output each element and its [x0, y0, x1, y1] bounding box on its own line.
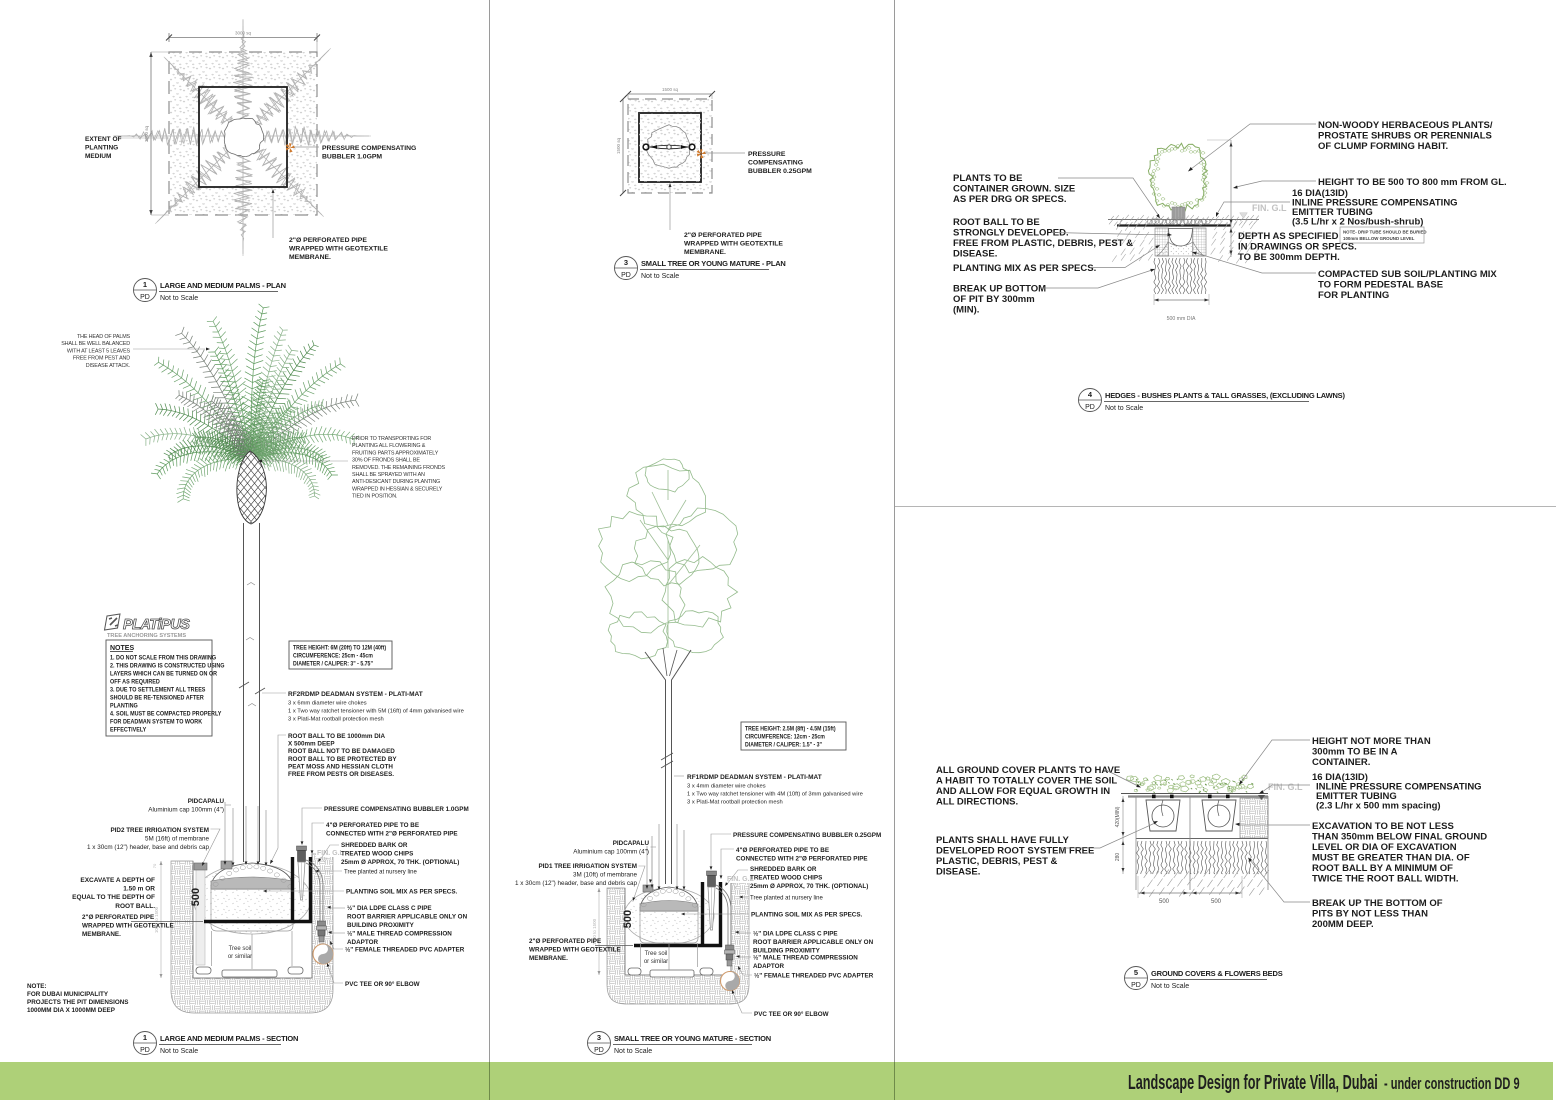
svg-text:WRAPPED IN HESSIAN & SECUR: WRAPPED IN HESSIAN & SECURELY: [352, 486, 443, 492]
svg-text:AS PER DRG OR SPECS.: AS PER DRG OR SPECS.: [953, 194, 1067, 205]
svg-text:EQUAL TO THE DEPTH OF: EQUAL TO THE DEPTH OF: [72, 894, 155, 901]
svg-text:CIRCUMFERENCE: 25cm - 45cm: CIRCUMFERENCE: 25cm - 45cm: [293, 653, 373, 660]
svg-text:ANTI-DESICANT DURING PLANTIN: ANTI-DESICANT DURING PLANTING: [352, 479, 440, 485]
svg-text:PID1 TREE IRRIGATION SYSTEM: PID1 TREE IRRIGATION SYSTEM: [538, 863, 637, 870]
svg-text:5: 5: [1134, 968, 1138, 977]
svg-text:30% OF FRONDS SHALL BE: 30% OF FRONDS SHALL BE: [352, 458, 420, 464]
svg-text:PITS BY NOT LESS THAN: PITS BY NOT LESS THAN: [1312, 909, 1428, 920]
svg-text:PRESSURE: PRESSURE: [748, 151, 786, 158]
svg-text:HEDGES - BUSHES PLANTS & TALL: HEDGES - BUSHES PLANTS & TALL GRASSES, (…: [1105, 391, 1345, 400]
svg-text:5M (16ft) of membrane: 5M (16ft) of membrane: [145, 836, 210, 843]
svg-text:2"Ø PERFORATED PIPE: 2"Ø PERFORATED PIPE: [529, 938, 601, 945]
svg-text:2"Ø PERFORATED PIPE: 2"Ø PERFORATED PIPE: [684, 232, 762, 239]
svg-text:70: 70: [152, 863, 157, 868]
svg-text:ALL DIRECTIONS.: ALL DIRECTIONS.: [936, 797, 1018, 808]
svg-text:OFF AS REQUIRED: OFF AS REQUIRED: [110, 679, 160, 685]
svg-text:PD: PD: [140, 1047, 150, 1054]
svg-text:EXTENT OF: EXTENT OF: [85, 136, 122, 143]
svg-text:300mm TO BE IN A: 300mm TO BE IN A: [1312, 747, 1398, 758]
svg-text:420(MIN): 420(MIN): [1115, 806, 1121, 827]
svg-text:ROOT BALL TO BE PROTECTED BY: ROOT BALL TO BE PROTECTED BY: [288, 756, 397, 763]
svg-text:FOR PLANTING: FOR PLANTING: [1318, 290, 1389, 301]
svg-text:X 500mm DEEP: X 500mm DEEP: [288, 741, 335, 748]
svg-text:REMOVED. THE REMAINING FRON: REMOVED. THE REMAINING FRONDS: [352, 465, 445, 471]
svg-text:BREAK UP THE BOTTOM OF: BREAK UP THE BOTTOM OF: [1312, 898, 1443, 909]
svg-text:TWICE THE ROOT BALL WIDTH.: TWICE THE ROOT BALL WIDTH.: [1312, 874, 1459, 885]
svg-text:500: 500: [622, 910, 634, 928]
svg-text:THAN 350mm BELOW FINAL GROUND: THAN 350mm BELOW FINAL GROUND: [1312, 832, 1487, 843]
svg-text:Not to Scale: Not to Scale: [641, 273, 679, 280]
svg-text:SMALL TREE OR YOUNG MATURE - S: SMALL TREE OR YOUNG MATURE - SECTION: [614, 1034, 771, 1043]
svg-text:2. THIS DRAWING IS CONSTRUCTE: 2. THIS DRAWING IS CONSTRUCTED USING: [110, 663, 225, 669]
svg-text:Not to Scale: Not to Scale: [160, 295, 198, 302]
svg-text:PD: PD: [1085, 404, 1095, 411]
svg-text:HEIGHT TO BE 500 TO 800 mm FRO: HEIGHT TO BE 500 TO 800 mm FROM GL.: [1318, 177, 1507, 188]
svg-text:Landscape Design for Private V: Landscape Design for Private Villa, Duba…: [1128, 1071, 1378, 1094]
svg-text:PIDCAPALU: PIDCAPALU: [613, 840, 650, 847]
svg-text:GROUND COVERS & FLOWERS BEDS: GROUND COVERS & FLOWERS BEDS: [1151, 969, 1283, 978]
svg-text:PLANTS TO BE: PLANTS TO BE: [953, 173, 1023, 184]
svg-text:ROOT BALL TO BE 1000mm DIA: ROOT BALL TO BE 1000mm DIA: [288, 733, 385, 740]
svg-text:HEIGHT NOT MORE THAN: HEIGHT NOT MORE THAN: [1312, 736, 1431, 747]
svg-text:Not to Scale: Not to Scale: [614, 1048, 652, 1055]
svg-text:DISEASE.: DISEASE.: [953, 249, 997, 260]
svg-text:500: 500: [1211, 899, 1222, 905]
svg-text:SMALL TREE OR YOUNG MATURE - P: SMALL TREE OR YOUNG MATURE - PLAN: [641, 259, 786, 268]
svg-text:SHALL BE WELL BALANCED: SHALL BE WELL BALANCED: [61, 341, 130, 347]
svg-text:MEMBRANE.: MEMBRANE.: [529, 955, 568, 962]
svg-text:or similar: or similar: [644, 959, 668, 965]
svg-text:25mm Ø APPROX, 70 THK. (OPTION: 25mm Ø APPROX, 70 THK. (OPTIONAL): [341, 859, 459, 866]
svg-text:TO FORM PEDESTAL BASE: TO FORM PEDESTAL BASE: [1318, 280, 1443, 291]
svg-text:3M (10ft) of membrane: 3M (10ft) of membrane: [573, 872, 638, 879]
svg-text:2"Ø PERFORATED PIPE: 2"Ø PERFORATED PIPE: [82, 914, 154, 921]
svg-text:PRESSURE COMPENSATING BUBBLER: PRESSURE COMPENSATING BUBBLER 0.25GPM: [733, 832, 881, 839]
svg-text:CONTAINER.: CONTAINER.: [1312, 757, 1370, 768]
svg-text:½" FEMALE THREADED PVC ADAPTER: ½" FEMALE THREADED PVC ADAPTER: [754, 972, 874, 980]
svg-text:FREE FROM PLASTIC, DEBRIS, PES: FREE FROM PLASTIC, DEBRIS, PEST &: [953, 238, 1133, 249]
svg-text:CONNECTED WITH 2"Ø PERFORATED: CONNECTED WITH 2"Ø PERFORATED PIPE: [736, 856, 868, 863]
svg-text:BUILDING PROXIMITY: BUILDING PROXIMITY: [347, 922, 415, 929]
svg-text:½" DIA LDPE CLASS C PIPE: ½" DIA LDPE CLASS C PIPE: [753, 930, 838, 938]
svg-text:PLANTING MIX AS PER SPECS.: PLANTING MIX AS PER SPECS.: [953, 263, 1096, 274]
svg-text:RF2RDMP DEADMAN SYSTEM - PLATI: RF2RDMP DEADMAN SYSTEM - PLATI-MAT: [288, 691, 423, 698]
svg-text:WRAPPED WITH GEOTEXTILE: WRAPPED WITH GEOTEXTILE: [289, 246, 388, 253]
svg-text:3000 sq: 3000 sq: [144, 125, 149, 142]
svg-text:PD: PD: [621, 272, 631, 279]
svg-text:STRONGLY DEVELOPED.: STRONGLY DEVELOPED.: [953, 228, 1069, 239]
svg-text:NOTE- DRIP TUBE SHOULD BE BURI: NOTE- DRIP TUBE SHOULD BE BURIED: [1343, 230, 1427, 235]
svg-text:Tree planted at nursery line: Tree planted at nursery line: [750, 896, 823, 902]
svg-text:FIN. G.L: FIN. G.L: [1268, 782, 1303, 792]
svg-text:PVC TEE OR 90° ELBOW: PVC TEE OR 90° ELBOW: [754, 1010, 829, 1018]
svg-text:BREAK UP BOTTOM: BREAK UP BOTTOM: [953, 284, 1046, 295]
svg-text:THE HEAD OF PALMS: THE HEAD OF PALMS: [77, 334, 131, 340]
svg-text:(3.5 L/hr x 2 Nos/bush-shrub): (3.5 L/hr x 2 Nos/bush-shrub): [1292, 217, 1423, 228]
svg-text:280: 280: [1115, 853, 1121, 862]
svg-text:PEAT MOSS AND HESSIAN CLOTH: PEAT MOSS AND HESSIAN CLOTH: [288, 763, 393, 770]
svg-text:PID2 TREE IRRIGATION SYSTEM: PID2 TREE IRRIGATION SYSTEM: [110, 827, 209, 834]
svg-text:3. DUE TO SETTLEMENT ALL TREE: 3. DUE TO SETTLEMENT ALL TREES: [110, 687, 205, 693]
svg-text:EXCAVATION TO BE NOT LESS: EXCAVATION TO BE NOT LESS: [1312, 821, 1454, 832]
svg-text:BUBBLER 0.25GPM: BUBBLER 0.25GPM: [748, 168, 812, 175]
svg-text:DEVELOPED ROOT SYSTEM FREE: DEVELOPED ROOT SYSTEM FREE: [936, 846, 1094, 857]
svg-text:1500 sq: 1500 sq: [616, 137, 621, 154]
svg-text:1 x 30cm (12") header, base an: 1 x 30cm (12") header, base and debris c…: [87, 844, 209, 851]
svg-text:PVC TEE OR 90° ELBOW: PVC TEE OR 90° ELBOW: [345, 980, 420, 988]
svg-text:FIN. G.L: FIN. G.L: [1252, 203, 1287, 213]
svg-text:BUBBLER 1.0GPM: BUBBLER 1.0GPM: [322, 154, 382, 161]
svg-text:PRESSURE COMPENSATING: PRESSURE COMPENSATING: [322, 145, 416, 152]
svg-text:500: 500: [1159, 899, 1170, 905]
svg-text:RF1RDMP DEADMAN SYSTEM - PLATI: RF1RDMP DEADMAN SYSTEM - PLATI-MAT: [687, 774, 822, 781]
svg-text:1. DO NOT SCALE FROM THIS DRA: 1. DO NOT SCALE FROM THIS DRAWING: [110, 655, 216, 661]
svg-text:ALL GROUND COVER PLANTS TO HAV: ALL GROUND COVER PLANTS TO HAVE: [936, 765, 1120, 776]
svg-text:TREE HEIGHT: 2.5M (8ft) - 4.5M: TREE HEIGHT: 2.5M (8ft) - 4.5M (15ft): [745, 726, 836, 733]
svg-text:ROOT BALL NOT TO BE DAMAGED: ROOT BALL NOT TO BE DAMAGED: [288, 748, 395, 755]
svg-text:½" MALE THREAD COMPRESSION: ½" MALE THREAD COMPRESSION: [753, 954, 858, 962]
svg-text:3 x Plati-Mat rootball protect: 3 x Plati-Mat rootball protection mesh: [288, 717, 384, 723]
svg-text:3000 sq: 3000 sq: [235, 31, 252, 36]
svg-text:AND ALLOW FOR EQUAL GROWTH IN: AND ALLOW FOR EQUAL GROWTH IN: [936, 786, 1110, 797]
svg-text:WITH AT LEAST 5 LEAVES: WITH AT LEAST 5 LEAVES: [67, 348, 131, 354]
svg-text:EXCAVATE A DEPTH OF: EXCAVATE A DEPTH OF: [80, 877, 155, 884]
svg-text:4"Ø PERFORATED PIPE TO BE: 4"Ø PERFORATED PIPE TO BE: [326, 822, 419, 829]
svg-text:PD: PD: [1131, 982, 1141, 989]
svg-text:1500 sq: 1500 sq: [662, 87, 679, 92]
svg-text:4. SOIL MUST BE COMPACTED PRO: 4. SOIL MUST BE COMPACTED PROPERLY: [110, 711, 221, 717]
svg-text:FOR DUBAI MUNICIPALITY: FOR DUBAI MUNICIPALITY: [27, 991, 109, 998]
svg-text:TREATED WOOD CHIPS: TREATED WOOD CHIPS: [750, 875, 822, 882]
svg-text:PLANTING: PLANTING: [85, 145, 118, 152]
svg-text:FREE FROM PEST AND: FREE FROM PEST AND: [73, 356, 130, 362]
svg-text:2"Ø PERFORATED PIPE: 2"Ø PERFORATED PIPE: [289, 237, 367, 244]
svg-text:½" FEMALE THREADED PVC ADAPTER: ½" FEMALE THREADED PVC ADAPTER: [345, 946, 465, 954]
svg-text:PRIOR TO TRANSPORTING FOR: PRIOR TO TRANSPORTING FOR: [352, 436, 431, 442]
svg-text:ROOT BARRIER APPLICABLE ONLY O: ROOT BARRIER APPLICABLE ONLY ON: [347, 914, 468, 921]
svg-text:COMPENSATING: COMPENSATING: [748, 160, 803, 167]
svg-text:PIDCAPALU: PIDCAPALU: [188, 798, 225, 805]
svg-text:(MIN).: (MIN).: [953, 305, 979, 316]
svg-text:1000MM DIA X 1000MM DEEP: 1000MM DIA X 1000MM DEEP: [27, 1007, 115, 1014]
svg-text:NON-WOODY HERBACEOUS PLANTS/: NON-WOODY HERBACEOUS PLANTS/: [1318, 120, 1493, 131]
svg-text:3 x Plati-Mat rootball protect: 3 x Plati-Mat rootball protection mesh: [687, 800, 783, 806]
svg-text:3: 3: [624, 258, 628, 267]
svg-text:FREE FROM PESTS OR DISEASES.: FREE FROM PESTS OR DISEASES.: [288, 771, 394, 778]
svg-text:100mm BELLOW GROUND LEVEL: 100mm BELLOW GROUND LEVEL: [1343, 236, 1415, 241]
svg-text:ROOT BALL TO BE: ROOT BALL TO BE: [953, 217, 1040, 228]
svg-text:ROOT BARRIER APPLICABLE ONLY O: ROOT BARRIER APPLICABLE ONLY ON: [753, 939, 874, 946]
svg-text:TO BE 300mm DEPTH.: TO BE 300mm DEPTH.: [1238, 252, 1340, 263]
svg-text:1 x Two way ratchet tensioner: 1 x Two way ratchet tensioner with 4M (1…: [687, 792, 863, 798]
svg-text:NOTES: NOTES: [110, 645, 134, 652]
svg-text:DISEASE ATTACK.: DISEASE ATTACK.: [86, 363, 130, 369]
svg-text:MEMBRANE.: MEMBRANE.: [289, 254, 331, 261]
svg-text:PLANTING: PLANTING: [110, 703, 138, 709]
svg-text:MUST BE GREATER THAN DIA. OF: MUST BE GREATER THAN DIA. OF: [1312, 853, 1470, 864]
svg-text:Not to Scale: Not to Scale: [1105, 405, 1143, 412]
svg-text:PROSTATE SHRUBS OR PERENNIALS: PROSTATE SHRUBS OR PERENNIALS: [1318, 131, 1492, 142]
svg-text:(2.3 L/hr x 500 mm spacing): (2.3 L/hr x 500 mm spacing): [1316, 801, 1441, 812]
svg-text:TREE HEIGHT: 6M (20ft) TO 12M: TREE HEIGHT: 6M (20ft) TO 12M (40ft): [293, 645, 386, 652]
svg-text:1: 1: [143, 1033, 147, 1042]
svg-text:SHREDDED BARK OR: SHREDDED BARK OR: [341, 842, 408, 849]
svg-text:PROJECTS THE PIT DIMENSIONS: PROJECTS THE PIT DIMENSIONS: [27, 999, 128, 1006]
svg-text:DEPTH AS SPECIFIED: DEPTH AS SPECIFIED: [1238, 231, 1339, 242]
svg-text:PD: PD: [140, 294, 150, 301]
svg-text:PLASTIC, DEBRIS, PEST &: PLASTIC, DEBRIS, PEST &: [936, 856, 1058, 867]
svg-text:Tree soil: Tree soil: [645, 951, 668, 957]
svg-text:Tree planted at nursery line: Tree planted at nursery line: [344, 870, 417, 876]
svg-text:LARGE AND MEDIUM PALMS - PLAN: LARGE AND MEDIUM PALMS - PLAN: [160, 281, 286, 290]
svg-text:PLANTING SOIL MIX AS PER SPECS: PLANTING SOIL MIX AS PER SPECS.: [346, 889, 458, 896]
svg-text:1 x 30cm (12") header, base an: 1 x 30cm (12") header, base and debris c…: [515, 880, 637, 887]
svg-text:1: 1: [143, 280, 147, 289]
svg-text:PRESSURE COMPENSATING BUBBLER: PRESSURE COMPENSATING BUBBLER 1.0GPM: [324, 806, 469, 813]
svg-text:DIAMETER / CALIPER: 3" - 5.75": DIAMETER / CALIPER: 3" - 5.75": [293, 661, 373, 668]
svg-text:WRAPPED WITH GEOTEXTILE: WRAPPED WITH GEOTEXTILE: [82, 923, 174, 930]
svg-text:3 x 4mm diameter wire chokes: 3 x 4mm diameter wire chokes: [687, 784, 766, 790]
svg-text:SHALL BE SPRAYED WITH AN: SHALL BE SPRAYED WITH AN: [352, 472, 425, 478]
svg-text:OF CLUMP FORMING HABIT.: OF CLUMP FORMING HABIT.: [1318, 141, 1448, 152]
svg-text:500: 500: [190, 888, 202, 906]
svg-text:3 x 6mm diameter wire chokes: 3 x 6mm diameter wire chokes: [288, 701, 367, 707]
svg-text:Aluminium cap 100mm (4"): Aluminium cap 100mm (4"): [573, 849, 649, 856]
svg-text:4"Ø PERFORATED PIPE TO BE: 4"Ø PERFORATED PIPE TO BE: [736, 847, 829, 854]
svg-text:Tree soil: Tree soil: [229, 946, 252, 952]
svg-text:WRAPPED WITH GEOTEXTILE: WRAPPED WITH GEOTEXTILE: [684, 241, 783, 248]
svg-text:BUILDING PROXIMITY: BUILDING PROXIMITY: [753, 948, 821, 955]
svg-text:PD: PD: [594, 1047, 604, 1054]
svg-text:CONNECTED WITH 2"Ø PERFORATED: CONNECTED WITH 2"Ø PERFORATED PIPE: [326, 831, 458, 838]
svg-text:ADAPTOR: ADAPTOR: [347, 939, 378, 946]
svg-text:COMPACTED SUB SOIL/PLANTING MI: COMPACTED SUB SOIL/PLANTING MIX: [1318, 269, 1497, 280]
svg-text:NOTE:: NOTE:: [27, 983, 47, 990]
svg-text:IN DRAWINGS OR SPECS.: IN DRAWINGS OR SPECS.: [1238, 242, 1357, 253]
svg-text:LAYERS WHICH CAN BE TURNED ON: LAYERS WHICH CAN BE TURNED ON OR: [110, 671, 218, 677]
svg-text:DIAMETER / CALIPER: 1.5" - 3": DIAMETER / CALIPER: 1.5" - 3": [745, 742, 822, 749]
svg-text:3: 3: [597, 1033, 601, 1042]
svg-text:SHREDDED BARK OR: SHREDDED BARK OR: [750, 866, 817, 873]
svg-text:1.50 m OR: 1.50 m OR: [123, 886, 155, 893]
svg-text:CONTAINER GROWN. SIZE: CONTAINER GROWN. SIZE: [953, 184, 1075, 195]
svg-text:ROOT BALL.: ROOT BALL.: [115, 903, 155, 910]
svg-text:PLATiPUS: PLATiPUS: [123, 617, 190, 633]
svg-text:MEMBRANE.: MEMBRANE.: [684, 249, 726, 256]
svg-text:EFFECTIVELY: EFFECTIVELY: [110, 727, 146, 733]
svg-text:LARGE AND MEDIUM PALMS - SECTI: LARGE AND MEDIUM PALMS - SECTION: [160, 1034, 298, 1043]
svg-text:Aluminium cap 100mm (4"): Aluminium cap 100mm (4"): [148, 807, 224, 814]
svg-text:500 mm DIA: 500 mm DIA: [1167, 316, 1196, 322]
svg-text:Not to Scale: Not to Scale: [1151, 983, 1189, 990]
svg-text:OF PIT BY 300mm: OF PIT BY 300mm: [953, 294, 1035, 305]
svg-text:TREE ANCHORING SYSTEMS: TREE ANCHORING SYSTEMS: [107, 633, 186, 639]
svg-text:- under construction DD 9: - under construction DD 9: [1384, 1075, 1520, 1094]
svg-text:CIRCUMFERENCE: 12cm - 25cm: CIRCUMFERENCE: 12cm - 25cm: [745, 734, 825, 741]
svg-text:ADAPTOR: ADAPTOR: [753, 963, 784, 970]
svg-text:or similar: or similar: [228, 954, 252, 960]
svg-text:Not to Scale: Not to Scale: [160, 1048, 198, 1055]
svg-text:ROOT BALL BY A MINIMUM OF: ROOT BALL BY A MINIMUM OF: [1312, 863, 1453, 874]
svg-text:FRUITING PARTS APPROXIMATELY: FRUITING PARTS APPROXIMATELY: [352, 450, 439, 456]
svg-text:MEDIUM: MEDIUM: [85, 153, 111, 160]
svg-text:A HABIT TO TOTALLY COVER THE S: A HABIT TO TOTALLY COVER THE SOIL: [936, 776, 1117, 787]
svg-text:TIED IN POSITION.: TIED IN POSITION.: [352, 494, 397, 500]
svg-text:FOR DEADMAN SYSTEM TO WORK: FOR DEADMAN SYSTEM TO WORK: [110, 719, 203, 725]
svg-text:SHOULD BE RE-TENSIONED AFTER: SHOULD BE RE-TENSIONED AFTER: [110, 695, 204, 701]
svg-text:WRAPPED WITH GEOTEXTILE: WRAPPED WITH GEOTEXTILE: [529, 947, 621, 954]
svg-text:LEVEL OR DIA OF EXCAVATION: LEVEL OR DIA OF EXCAVATION: [1312, 842, 1457, 853]
svg-text:PLANTING ALL FLOWERING &: PLANTING ALL FLOWERING &: [352, 443, 426, 449]
svg-text:DISEASE.: DISEASE.: [936, 867, 980, 878]
svg-text:1 x Two way ratchet tensioner: 1 x Two way ratchet tensioner with 5M (1…: [288, 709, 464, 715]
svg-text:MEMBRANE.: MEMBRANE.: [82, 931, 121, 938]
svg-text:½" DIA LDPE CLASS C PIPE: ½" DIA LDPE CLASS C PIPE: [347, 904, 432, 912]
svg-text:200MM DEEP.: 200MM DEEP.: [1312, 919, 1374, 930]
svg-text:TREATED WOOD CHIPS: TREATED WOOD CHIPS: [341, 851, 413, 858]
svg-text:25mm Ø APPROX, 70 THK. (OPTION: 25mm Ø APPROX, 70 THK. (OPTIONAL): [750, 883, 868, 890]
svg-text:½" MALE THREAD COMPRESSION: ½" MALE THREAD COMPRESSION: [347, 930, 452, 938]
svg-text:PLANTS SHALL HAVE FULLY: PLANTS SHALL HAVE FULLY: [936, 835, 1069, 846]
svg-text:PLANTING SOIL MIX AS PER SPECS: PLANTING SOIL MIX AS PER SPECS.: [751, 912, 863, 919]
